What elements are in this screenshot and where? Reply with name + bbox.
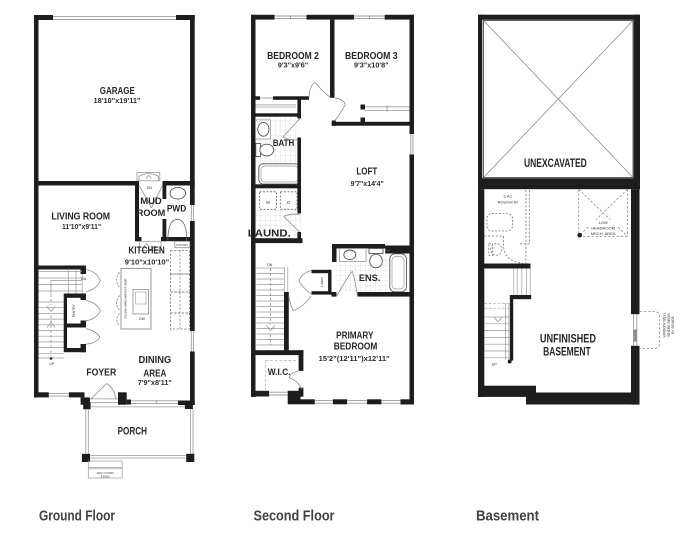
svg-text:LINEN: LINEN xyxy=(320,277,324,287)
svg-text:DINING: DINING xyxy=(139,354,172,366)
svg-text:11'10"x9'11": 11'10"x9'11" xyxy=(62,222,102,231)
svg-text:PORCH: PORCH xyxy=(118,426,147,438)
svg-text:KITCHEN: KITCHEN xyxy=(128,246,165,257)
svg-text:Ground Floor: Ground Floor xyxy=(39,508,115,525)
svg-text:D: D xyxy=(287,200,290,205)
svg-text:UP: UP xyxy=(492,363,498,367)
svg-text:HEADROOM: HEADROOM xyxy=(591,225,615,230)
svg-text:Basement: Basement xyxy=(476,507,539,524)
svg-text:UP: UP xyxy=(49,362,55,366)
svg-text:FLUSH BREAKFAST BAR: FLUSH BREAKFAST BAR xyxy=(124,278,128,319)
svg-text:LOFT: LOFT xyxy=(356,166,377,178)
svg-text:PRIMARY: PRIMARY xyxy=(336,331,373,342)
svg-text:MUD: MUD xyxy=(140,196,162,207)
svg-text:MECH. AREA: MECH. AREA xyxy=(591,231,616,236)
svg-text:LAUND.: LAUND. xyxy=(248,228,291,240)
svg-text:LOW: LOW xyxy=(599,220,608,225)
svg-text:ENS.: ENS. xyxy=(359,273,381,284)
svg-text:8 RISN: 8 RISN xyxy=(101,475,110,479)
svg-text:9'3"x9'6": 9'3"x9'6" xyxy=(278,61,309,70)
svg-text:PANTRY: PANTRY xyxy=(176,243,188,247)
svg-text:LIVING ROOM: LIVING ROOM xyxy=(51,210,110,222)
svg-text:BASEMENT: BASEMENT xyxy=(543,347,591,359)
svg-text:PWD: PWD xyxy=(167,204,187,215)
svg-text:9'7"x14'4": 9'7"x14'4" xyxy=(351,179,385,188)
svg-text:3 PC: 3 PC xyxy=(503,194,512,199)
svg-text:BATH: BATH xyxy=(273,138,295,148)
svg-text:FOYER: FOYER xyxy=(86,367,116,379)
svg-text:ROUGH-IN: ROUGH-IN xyxy=(498,200,518,205)
svg-text:W.I.C.: W.I.C. xyxy=(268,367,291,378)
svg-text:BEDROOM: BEDROOM xyxy=(334,341,378,352)
svg-text:DW: DW xyxy=(139,317,145,321)
svg-text:18'10"x19'11": 18'10"x19'11" xyxy=(94,96,141,105)
svg-text:UNEXCAVATED: UNEXCAVATED xyxy=(524,158,587,170)
svg-text:DN: DN xyxy=(267,263,273,267)
svg-text:ROOM: ROOM xyxy=(137,208,166,219)
svg-text:W: W xyxy=(266,200,270,205)
svg-text:9'10"x10'10": 9'10"x10'10" xyxy=(125,258,170,267)
svg-text:Second Floor: Second Floor xyxy=(254,508,335,525)
svg-text:9'3"x10'8": 9'3"x10'8" xyxy=(354,61,389,70)
svg-text:DN: DN xyxy=(81,277,87,281)
svg-text:DN: DN xyxy=(147,186,153,190)
svg-text:7'9"x8'11": 7'9"x8'11" xyxy=(138,378,173,387)
svg-text:PANTRY: PANTRY xyxy=(72,304,76,318)
svg-text:UNFINISHED: UNFINISHED xyxy=(540,334,596,346)
svg-text:15'2"(12'11")x12'11": 15'2"(12'11")x12'11" xyxy=(319,356,390,363)
svg-text:BY GRADE: BY GRADE xyxy=(671,316,675,334)
